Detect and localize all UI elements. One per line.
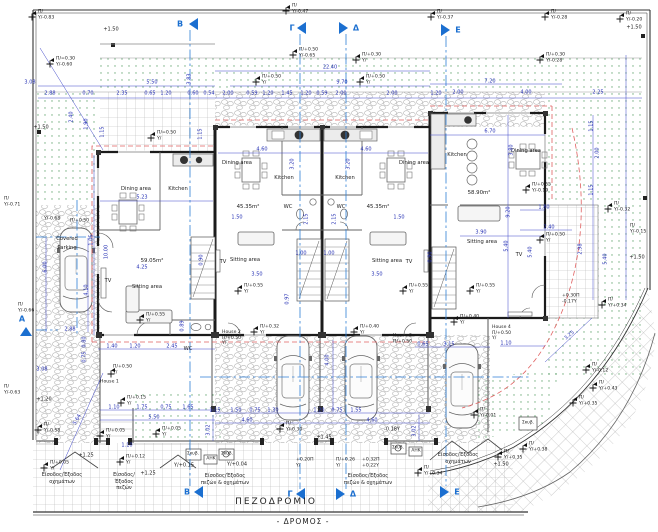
elevation-label: +0.30Π-0.17Υ — [562, 294, 580, 305]
dim-label: 1.20 — [430, 91, 441, 97]
dim-label: 3.50 — [371, 272, 382, 278]
room-label-covered: Covered — [56, 237, 78, 243]
dim-label: 0.70 — [82, 91, 93, 97]
room-label-tv-h4: TV — [516, 253, 523, 259]
benchmark-label: Π/Υ/-0.37 — [437, 10, 453, 21]
room-label-sitting-h4: Sitting area — [467, 240, 497, 246]
elevation-label: Π/Υ/-0.71 — [4, 197, 20, 208]
dim-label: 5.50 — [148, 415, 159, 421]
house-label-1: House 1 — [100, 379, 119, 385]
area-label-h3: 45.35m² — [367, 205, 390, 211]
dim-label: 0.75 — [249, 408, 260, 414]
level-label: +1.50 — [33, 125, 48, 131]
benchmark-label: Π/Υ/-0.47 — [292, 4, 308, 15]
dim-label: 1.30 — [267, 408, 278, 414]
room-label-wc-h2: WC — [284, 205, 293, 211]
dim-label: 2.40 — [543, 225, 554, 231]
dim-label: 0.90 — [428, 251, 434, 262]
elevation-label: Π/Υ/-0.58 — [44, 423, 60, 434]
level-label: Υ/+0.15 — [174, 463, 194, 469]
dim-label: 4.25 — [136, 265, 147, 271]
elevation-label: Π/Υ/-0.30 — [286, 422, 302, 433]
elevation-label: Π/+0.05Υ/ — [50, 461, 69, 472]
room-label-sitting-h3: Sitting area — [372, 259, 402, 265]
benchmark-label: Π/Υ/-0.83 — [38, 10, 54, 21]
dim-label: 5.23 — [136, 195, 147, 201]
dim-label: 2.15 — [304, 213, 310, 224]
level-label: Υ/+0.04 — [227, 462, 247, 468]
dim-label: 3.02 — [206, 424, 212, 435]
elevation-label: Π/+0.05Υ/ — [162, 427, 181, 438]
elevation-label: Π/+0.55Υ/-0.19 — [532, 183, 551, 194]
elevation-label: Π/+0.50Υ/-0.65 — [299, 48, 318, 59]
dim-label: 2.00 — [452, 90, 463, 96]
dim-label: 7.20 — [484, 79, 495, 85]
elevation-label: Π/=0.30Υ/-0.60 — [56, 57, 75, 68]
elevation-label: Π/Υ/-0.63 — [4, 385, 20, 396]
dim-label: 3.20 — [290, 158, 296, 169]
dim-label: 1.15 — [100, 126, 106, 137]
elevation-label: Π/+0.26Υ/ — [336, 458, 355, 469]
entrance-vehicles-left: Είσοδος/Έξοδοςοχημάτων — [42, 472, 82, 485]
dim-label: 3.50 — [251, 272, 262, 278]
dim-label: 2.00 — [595, 147, 601, 158]
dim-label: 2.15 — [332, 213, 338, 224]
dim-label: 1.45 — [281, 91, 292, 97]
dim-label: 1.50 — [231, 215, 242, 221]
dim-label: 1.20 — [262, 91, 273, 97]
dim-label: 1.10 — [108, 405, 119, 411]
dim-label: 1.20 — [160, 91, 171, 97]
dim-label: 2.88 — [64, 327, 75, 333]
dim-label: 0.89 — [180, 320, 186, 331]
dim-label: 2.00 — [335, 91, 346, 97]
elevation-label: Π/+0.12Υ/ — [126, 455, 145, 466]
elevation-label: Π/Υ/+0.35 — [579, 396, 597, 407]
dim-label: 0.60 — [187, 91, 198, 97]
section-letter-d-bottom: Δ — [350, 490, 356, 499]
level-label: +1.20 — [36, 397, 51, 403]
dim-label: 3.02 — [412, 425, 418, 436]
dim-label: 0.75 — [82, 351, 88, 362]
bin-label: Σκυβ. — [392, 447, 404, 452]
dim-label: 5.40 — [504, 240, 510, 251]
dim-label: 1.10 — [121, 443, 132, 449]
dim-label: 1.65 — [182, 405, 193, 411]
dim-label: 4.00 — [325, 354, 331, 365]
dim-label: 6.70 — [484, 129, 495, 135]
elevation-label: Π/+0.55Υ/ — [476, 284, 495, 295]
elevation-label: Π/+0.55Υ/ — [409, 284, 428, 295]
room-label-dining-h4: Dining area — [511, 149, 541, 155]
dim-label: 1.50 — [230, 408, 241, 414]
dim-label: 0.65 — [417, 342, 428, 348]
dim-label: 22.40 — [323, 65, 337, 71]
elevation-label: +0.20ΠΥ/ — [296, 458, 314, 469]
room-label-wc-h3: WC — [337, 205, 346, 211]
house-label-4: House 4Π/+0.50Υ/ — [492, 325, 511, 342]
section-letter-b-top: Β — [177, 20, 183, 29]
elevation-label: Π/+0.50 — [70, 218, 89, 224]
section-letter-b-bottom: Β — [184, 488, 190, 497]
room-label-kitchen-h2: Kitchen — [274, 176, 294, 182]
room-label-dining-h2: Dining area — [222, 161, 252, 167]
dim-label: 0.97 — [285, 293, 291, 304]
level-label: +1.50 — [493, 462, 508, 468]
dim-label: 1.20 — [300, 91, 311, 97]
elevation-label: Π/Υ/-0.66 — [18, 303, 34, 314]
dim-label: 1.40 — [106, 344, 117, 350]
section-letter-e-top: Ε — [455, 26, 460, 35]
elevation-label: Π/+0.50Υ/ — [113, 365, 132, 376]
room-label-kitchen-h4: Kitchen — [447, 153, 467, 159]
elevation-label: Π/+0.50Υ/ — [366, 75, 385, 86]
dim-label: 5.40 — [528, 246, 534, 257]
dim-label: 3.80 — [509, 144, 515, 155]
dim-label: 0.90 — [199, 254, 205, 265]
level-label: +1.50 — [626, 25, 641, 31]
elevation-label: Υ/-0.68 — [44, 216, 60, 222]
elevation-label: Π/+0.30Υ/-0.28 — [546, 53, 565, 64]
section-letter-a-left: Α — [19, 315, 25, 324]
dim-label: 0.54 — [203, 91, 214, 97]
dim-label: 0.59 — [246, 91, 257, 97]
elevation-label: +0.32Π+0.22Υ — [362, 458, 380, 469]
dim-label: 3.15 — [443, 342, 454, 348]
dim-label: 4.00 — [520, 90, 531, 96]
dim-label: 4.60 — [256, 147, 267, 153]
elevation-label: Π/Υ/+0.34 — [608, 298, 626, 309]
dim-label: 1.05 — [89, 234, 95, 245]
dim-label: 9.20 — [506, 206, 512, 217]
elevation-label: Π/+0.05Υ/ — [106, 429, 125, 440]
floor-plan-page: ΠΕΖΟΔΡΟΜΙΟ - ΔΡΟΜΟΣ - Β Γ Δ Ε Β Γ Δ Ε Α … — [0, 0, 658, 532]
dim-label: 2.45 — [166, 344, 177, 350]
elevation-label: Π/=0.50Υ/ — [157, 131, 176, 142]
dim-label: 0.80 — [82, 336, 88, 347]
dim-label: 3.08 — [36, 367, 47, 373]
dim-label: 2.00 — [386, 91, 397, 97]
dim-label: 1.80 — [538, 205, 549, 211]
room-label-sitting-h1: Sitting area — [132, 285, 162, 291]
dim-label: 5.40 — [603, 253, 609, 264]
dim-label: 3.20 — [346, 158, 352, 169]
dim-label: 6.00 — [43, 261, 49, 272]
level-label: +1.50 — [103, 27, 118, 33]
elevation-label: Π/Υ/+0.43 — [599, 381, 617, 392]
power-box-label: ΑΗΚ — [206, 458, 215, 463]
entrance-pedestrian: Είσοδος/Έξοδοςπεζών — [113, 472, 135, 492]
dim-label: 10.00 — [104, 245, 110, 259]
dim-label: 2.88 — [44, 91, 55, 97]
house-label-2: House 2Π/+0.50Υ/ — [222, 330, 241, 347]
elevation-label: Π/Υ/-0.32 — [614, 202, 630, 213]
dim-label: 2.25 — [592, 90, 603, 96]
dim-label: 2.40 — [69, 111, 75, 122]
room-label-tv-h1: TV — [105, 279, 112, 285]
dim-label: 0.75 — [160, 405, 171, 411]
dim-label: 4.10 — [84, 284, 90, 295]
dim-label: 0.75 — [331, 408, 342, 414]
section-letter-e-bottom: Ε — [454, 488, 459, 497]
level-label: +1.25 — [78, 453, 93, 459]
area-label-h4: 58.90m² — [468, 191, 491, 197]
dim-label: 0.59 — [316, 91, 327, 97]
elevation-label: Π/Υ/+0.38 — [529, 442, 547, 453]
room-label-wc-h1: WC — [184, 347, 193, 353]
elevation-label: Π/Υ/+0.35 — [504, 450, 522, 461]
room-label-parking: Parking — [57, 246, 76, 252]
dim-label: 1.10 — [500, 341, 511, 347]
room-label-tv-h3: TV — [406, 260, 413, 266]
elevation-label: Π/+0.40Υ/ — [460, 315, 479, 326]
area-label-h2: 45.35m² — [237, 205, 260, 211]
level-label: +1.50 — [629, 255, 644, 261]
dim-label: 3.08 — [24, 80, 35, 86]
level-label: +1.45 — [316, 435, 331, 441]
dim-label: 1.15 — [209, 408, 220, 414]
room-label-kitchen-h3: Kitchen — [335, 176, 355, 182]
elevation-label: Π/Υ/-0.12 — [592, 363, 608, 374]
section-letter-g-top: Γ — [289, 24, 294, 33]
dim-label: 9.70 — [336, 80, 347, 86]
elevation-label: Π/Υ/-0.01 — [480, 408, 496, 419]
elevation-label: Π/Υ/-0.15 — [630, 224, 646, 235]
dim-label: 1.75 — [136, 405, 147, 411]
room-label-tv-h2: TV — [220, 260, 227, 266]
dim-label: 2.00 — [222, 91, 233, 97]
dim-label: 1.15 — [589, 120, 595, 131]
room-label-dining-h3: Dining area — [399, 161, 429, 167]
dim-label: 1.50 — [393, 215, 404, 221]
dim-label: 1.20 — [313, 408, 324, 414]
dim-label: 5.50 — [146, 80, 157, 86]
entrance-mixed-1: Είσοδος/Έξοδοςπεζών & οχημάτων — [201, 473, 249, 486]
elevation-label: Π/Υ/+0.34 — [424, 466, 442, 477]
road-label: - ΔΡΟΜΟΣ - — [277, 518, 330, 526]
section-letter-g-bottom: Γ — [287, 490, 292, 499]
dim-label: 1.55 — [350, 408, 361, 414]
dim-label: 4.60 — [366, 418, 377, 424]
room-label-sitting-h2: Sitting area — [230, 258, 260, 264]
elevation-label: Π/+0.32Υ/ — [260, 325, 279, 336]
room-label-kitchen-h1: Kitchen — [168, 187, 188, 193]
room-label-dining-h1: Dining area — [121, 187, 151, 193]
power-box-label: ΑΗΚ — [411, 450, 420, 455]
bin-label: Σκυβ. — [221, 453, 233, 458]
dim-label: 0.65 — [144, 91, 155, 97]
elevation-label: Π/+0.50Υ/ — [546, 233, 565, 244]
elevation-label: Π/+0.55Υ/ — [244, 284, 263, 295]
elevation-label: Π/+0.40Υ/ — [360, 325, 379, 336]
dim-label: 3.83 — [187, 73, 193, 84]
dim-label: 1.90 — [84, 118, 90, 129]
level-label: +1.25 — [140, 471, 155, 477]
section-letter-d-top: Δ — [353, 24, 359, 33]
bin-label: Σκυβ. — [187, 453, 199, 458]
dim-label: 3.90 — [475, 230, 486, 236]
floor-plan-drawing — [0, 0, 658, 532]
dim-label: 1.15 — [198, 128, 204, 139]
elevation-label: Π/+0.50Υ/ — [262, 75, 281, 86]
dim-label: -0.18Υ — [384, 427, 400, 433]
dim-label: 1.20 — [129, 344, 140, 350]
benchmark-label: Π/Υ/-0.20 — [626, 12, 642, 23]
benchmark-label: Π/Υ/-0.28 — [551, 10, 567, 21]
entrance-vehicles-right: Είσοδος/Έξοδοςοχημάτων — [438, 452, 478, 465]
dim-label: 1.00 — [295, 251, 306, 257]
bin-label: Σκυβ. — [522, 422, 534, 427]
dim-label: 2.35 — [116, 91, 127, 97]
dim-label: 4.60 — [360, 147, 371, 153]
elevation-label: Π/+0.55Υ/ — [146, 313, 165, 324]
sidewalk-label: ΠΕΖΟΔΡΟΜΙΟ — [235, 498, 317, 508]
house-label-3: House 3Π/+0.50 — [393, 334, 412, 345]
elevation-label: Π/+0.30Υ/ — [362, 53, 381, 64]
dim-label: 1.00 — [323, 251, 334, 257]
entrance-mixed-2: Είσοδος/Έξοδοςπεζών & οχημάτων — [344, 473, 392, 486]
dim-label: 1.15 — [589, 184, 595, 195]
dim-label: 4.60 — [241, 418, 252, 424]
dim-label: 2.98 — [578, 243, 584, 254]
